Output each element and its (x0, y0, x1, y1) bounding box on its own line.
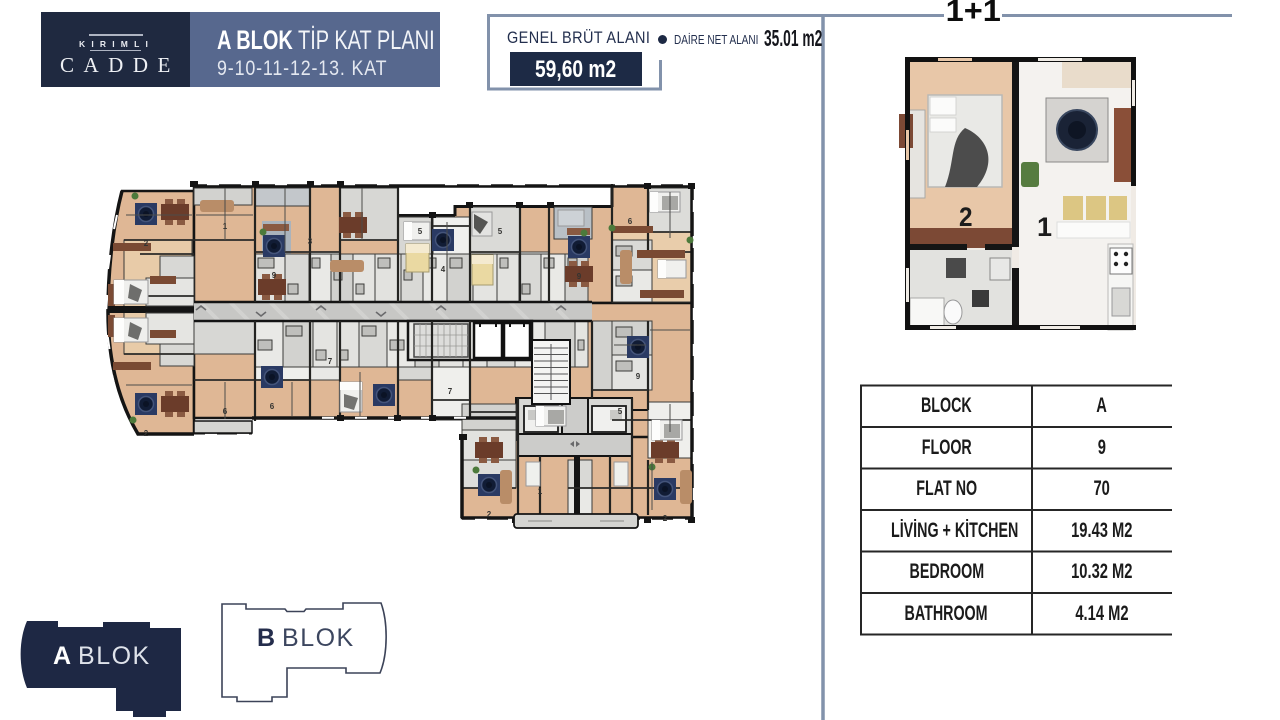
svg-text:7: 7 (328, 357, 333, 366)
svg-text:1: 1 (538, 487, 543, 496)
svg-text:5: 5 (418, 227, 423, 236)
svg-text:2: 2 (487, 510, 492, 519)
svg-text:1: 1 (1037, 212, 1052, 242)
svg-text:2: 2 (663, 514, 668, 523)
svg-text:6: 6 (628, 217, 633, 226)
svg-text:5: 5 (498, 227, 503, 236)
svg-text:3: 3 (308, 237, 313, 246)
svg-text:9: 9 (577, 272, 582, 281)
svg-text:6: 6 (270, 402, 275, 411)
svg-text:6: 6 (223, 407, 228, 416)
svg-text:9: 9 (636, 372, 641, 381)
svg-text:5: 5 (618, 407, 623, 416)
svg-text:2: 2 (144, 239, 149, 248)
svg-text:1: 1 (223, 222, 228, 231)
svg-text:2: 2 (144, 429, 149, 438)
svg-text:9: 9 (272, 271, 277, 280)
svg-text:7: 7 (448, 387, 453, 396)
svg-text:4: 4 (441, 265, 446, 274)
svg-text:2: 2 (959, 203, 973, 232)
